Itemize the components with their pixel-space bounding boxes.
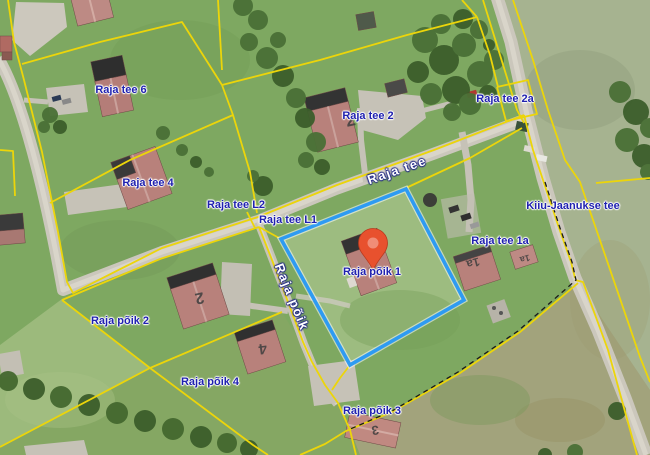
parcel-label: Raja põik 3 (343, 405, 401, 417)
parcel-label: Raja tee 1a (471, 235, 528, 247)
parcel-label-selected: Raja põik 1 (343, 266, 401, 278)
parcel-label: Raja põik 4 (181, 376, 239, 388)
house (0, 213, 25, 245)
parcel-label: Raja tee 2 (342, 110, 393, 122)
parcel-label: Kiiu-Jaanukse tee (526, 200, 620, 212)
satellite-map-canvas[interactable]: 2 2 4 1a 1a 3 Raja tee 6 Raja tee 4 Raja… (0, 0, 650, 455)
parcel-label: Raja tee 4 (122, 177, 173, 189)
parcel-label: Raja tee 2a (476, 93, 533, 105)
map-imagery: 2 2 4 1a 1a 3 (0, 0, 650, 455)
parcel-label: Raja tee L2 (207, 199, 265, 211)
parcel-label: Raja põik 2 (91, 315, 149, 327)
parcel-label: Raja tee 6 (95, 84, 146, 96)
parcel-label: Raja tee L1 (259, 214, 317, 226)
